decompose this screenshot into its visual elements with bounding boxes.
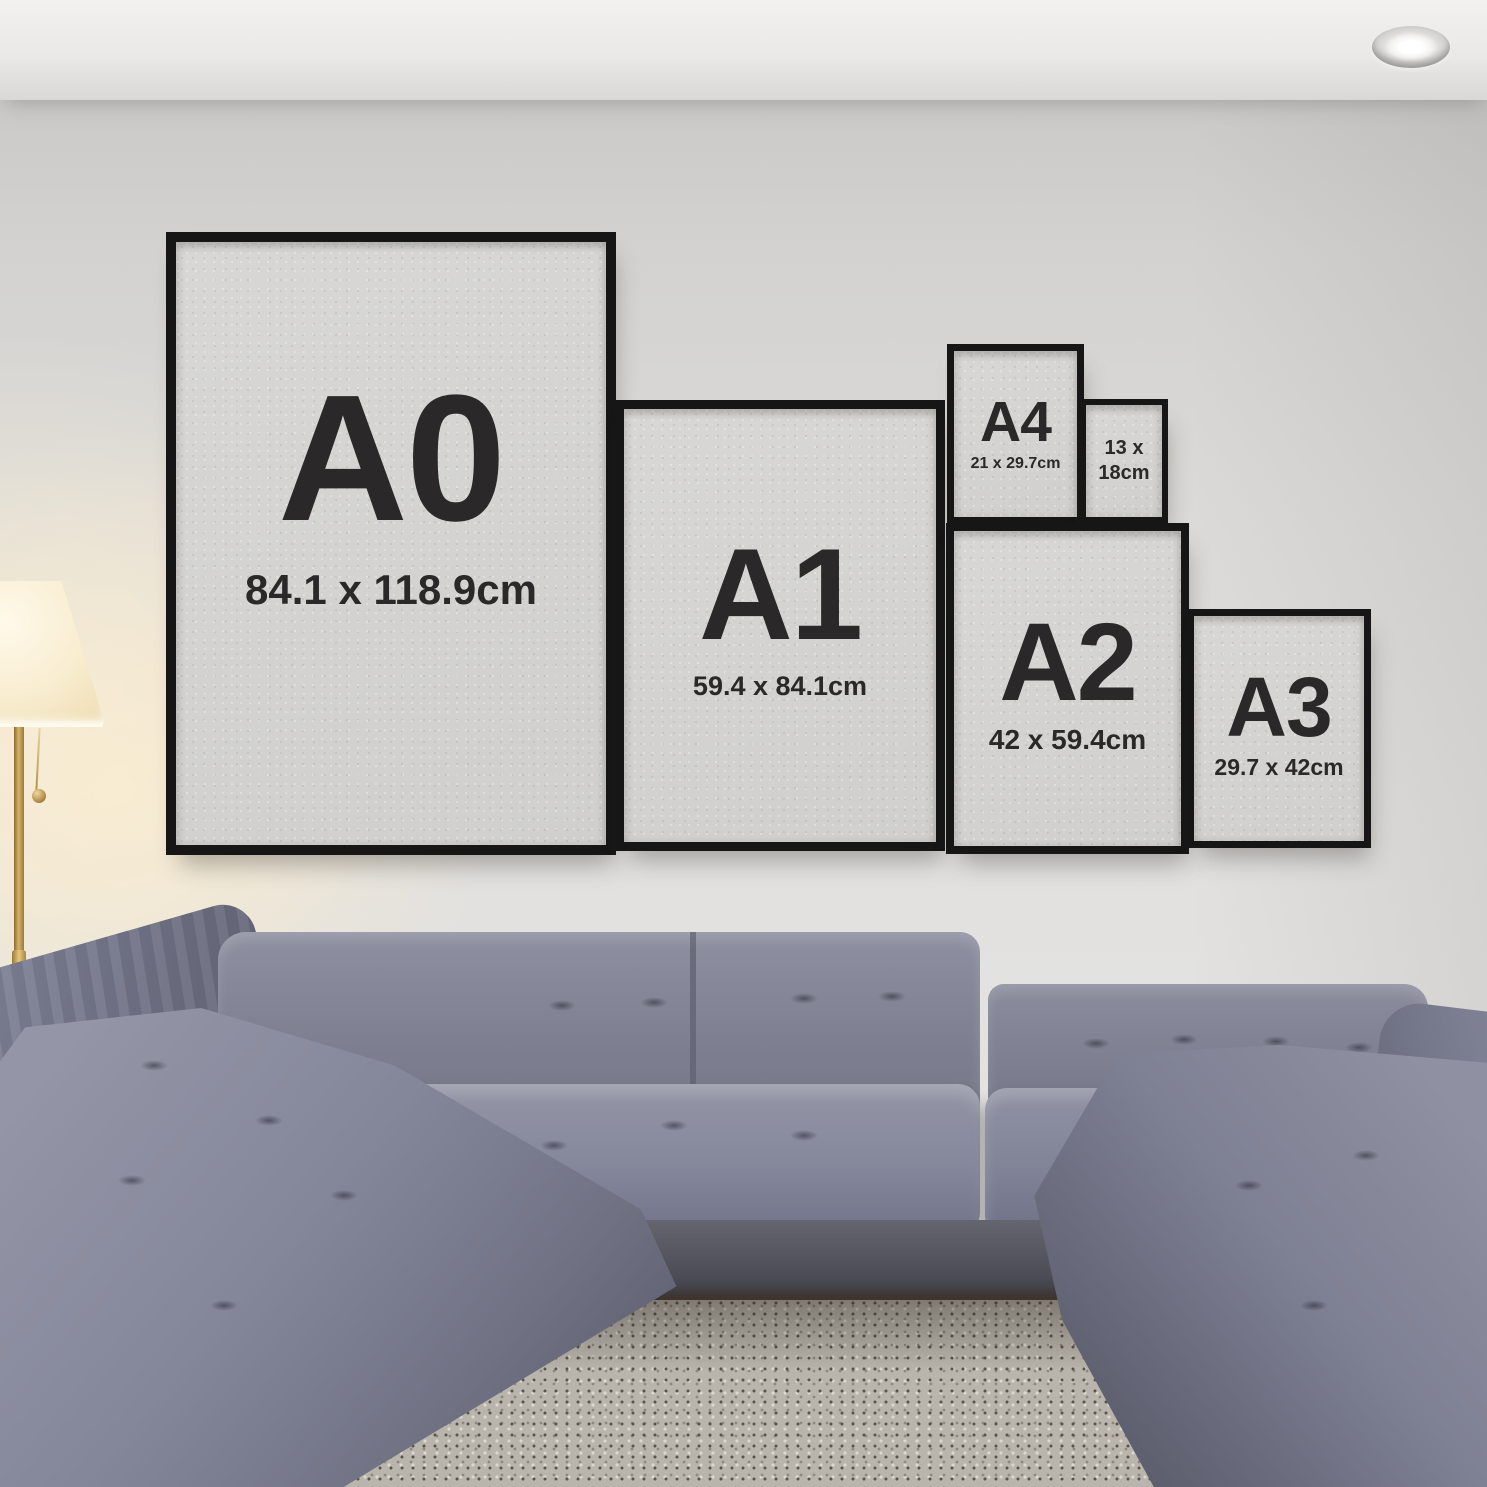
sofa-tuft: [140, 1060, 168, 1071]
sofa-tuft: [210, 1300, 238, 1311]
lamp-pull-chain: [35, 728, 40, 790]
poster-a3-label: A3: [1226, 668, 1331, 748]
poster-a1-paper: A1 59.4 x 84.1cm: [624, 409, 936, 842]
poster-a2-label: A2: [999, 611, 1136, 716]
poster-a1-size: 59.4 x 84.1cm: [693, 671, 867, 702]
sofa-tuft: [118, 1175, 146, 1186]
lamp-shade: [0, 581, 104, 727]
sofa-tuft: [330, 1190, 358, 1201]
ceiling: [0, 0, 1487, 100]
poster-a0-size: 84.1 x 118.9cm: [245, 566, 537, 614]
sofa-tuft: [660, 1120, 688, 1131]
poster-frame-a3: A3 29.7 x 42cm: [1187, 609, 1371, 848]
sofa-tuft: [640, 997, 668, 1008]
poster-13x18-size: 13 x 18cm: [1098, 436, 1149, 486]
poster-frame-a4: A4 21 x 29.7cm: [947, 344, 1084, 524]
poster-a4-size: 21 x 29.7cm: [971, 455, 1061, 473]
poster-a3-size: 29.7 x 42cm: [1214, 754, 1343, 781]
poster-a3-paper: A3 29.7 x 42cm: [1194, 616, 1364, 841]
sofa-tuft: [1235, 1180, 1263, 1191]
poster-a4-label: A4: [980, 395, 1051, 449]
poster-13x18-paper: 13 x 18cm: [1086, 405, 1162, 517]
poster-frame-a1: A1 59.4 x 84.1cm: [615, 400, 945, 851]
sofa-tuft: [878, 991, 906, 1002]
sofa-tuft: [1300, 1300, 1328, 1311]
poster-a4-paper: A4 21 x 29.7cm: [954, 351, 1077, 517]
poster-13x18-size-line2: 18cm: [1098, 461, 1149, 486]
poster-frame-13x18: 13 x 18cm: [1080, 399, 1168, 523]
poster-a0-label: A0: [278, 373, 504, 544]
sofa-tuft: [540, 1140, 568, 1151]
poster-a0-paper: A0 84.1 x 118.9cm: [176, 242, 606, 845]
sofa-tuft: [1170, 1034, 1198, 1045]
lamp-pull-ball: [32, 789, 46, 803]
sofa-tuft: [790, 1130, 818, 1141]
poster-frame-a0: A0 84.1 x 118.9cm: [166, 232, 616, 855]
poster-a2-size: 42 x 59.4cm: [989, 724, 1146, 756]
sofa-tuft: [255, 1115, 283, 1126]
recessed-ceiling-light: [1372, 26, 1450, 68]
sofa-tuft: [1352, 1150, 1380, 1161]
living-room-scene: A0 84.1 x 118.9cm A1 59.4 x 84.1cm A4 21…: [0, 0, 1487, 1487]
poster-frame-a2: A2 42 x 59.4cm: [946, 523, 1189, 854]
sofa-tuft: [790, 993, 818, 1004]
poster-13x18-size-line1: 13 x: [1098, 436, 1149, 461]
sofa-tuft: [1082, 1038, 1110, 1049]
poster-a2-paper: A2 42 x 59.4cm: [954, 531, 1181, 846]
sofa-tuft: [548, 1000, 576, 1011]
poster-a1-label: A1: [699, 533, 861, 657]
